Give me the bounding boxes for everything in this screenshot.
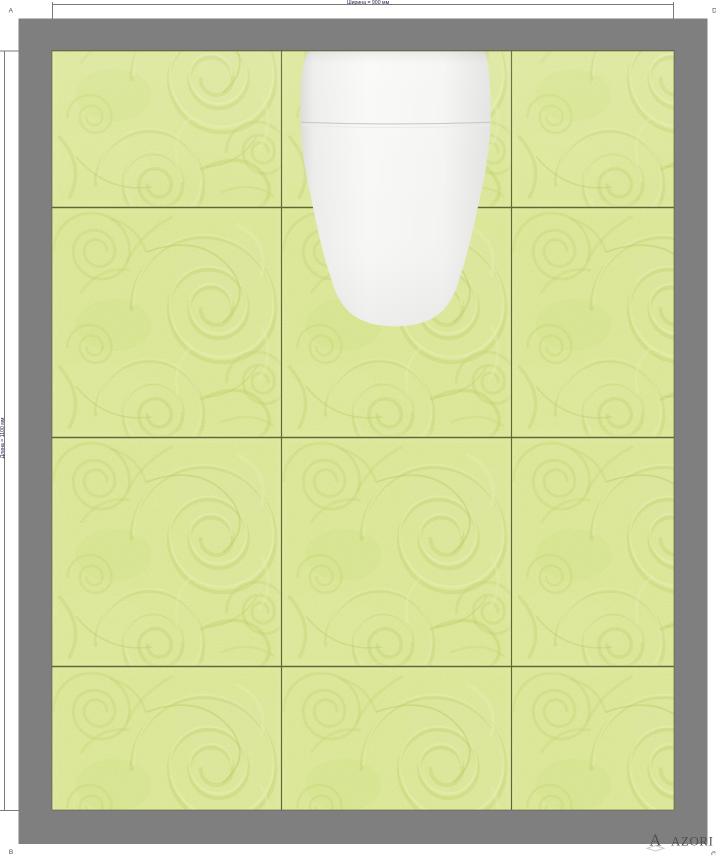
svg-text:AZORI: AZORI <box>671 835 714 849</box>
svg-text:Ширина = 900 мм: Ширина = 900 мм <box>347 0 390 6</box>
svg-text:Длина = 1100 мм: Длина = 1100 мм <box>0 417 6 458</box>
svg-text:A: A <box>9 8 14 15</box>
svg-text:D: D <box>712 8 716 15</box>
svg-text:B: B <box>9 849 13 855</box>
